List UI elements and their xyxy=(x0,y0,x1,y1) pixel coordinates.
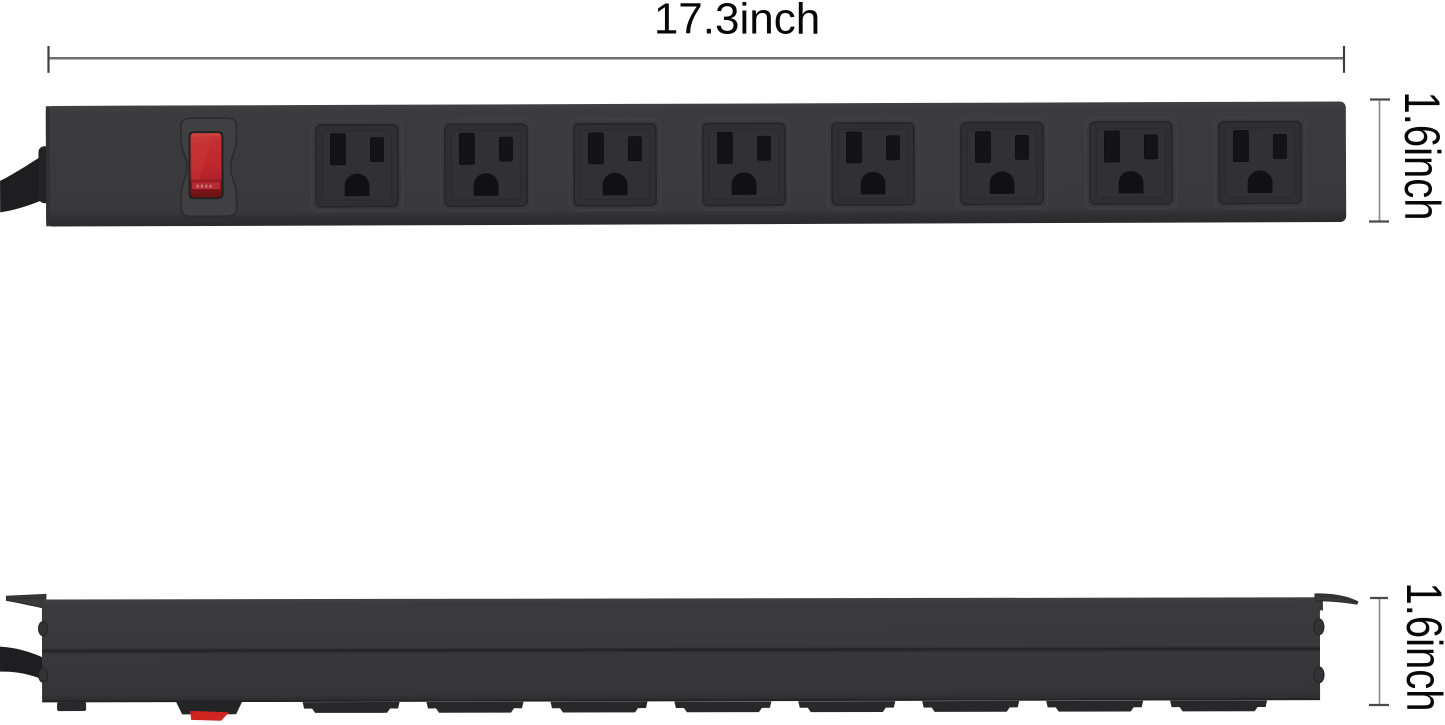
svg-text:1.6inch: 1.6inch xyxy=(1394,92,1445,221)
svg-text:1.6inch: 1.6inch xyxy=(1396,583,1445,712)
svg-text:17.3inch: 17.3inch xyxy=(654,0,820,44)
